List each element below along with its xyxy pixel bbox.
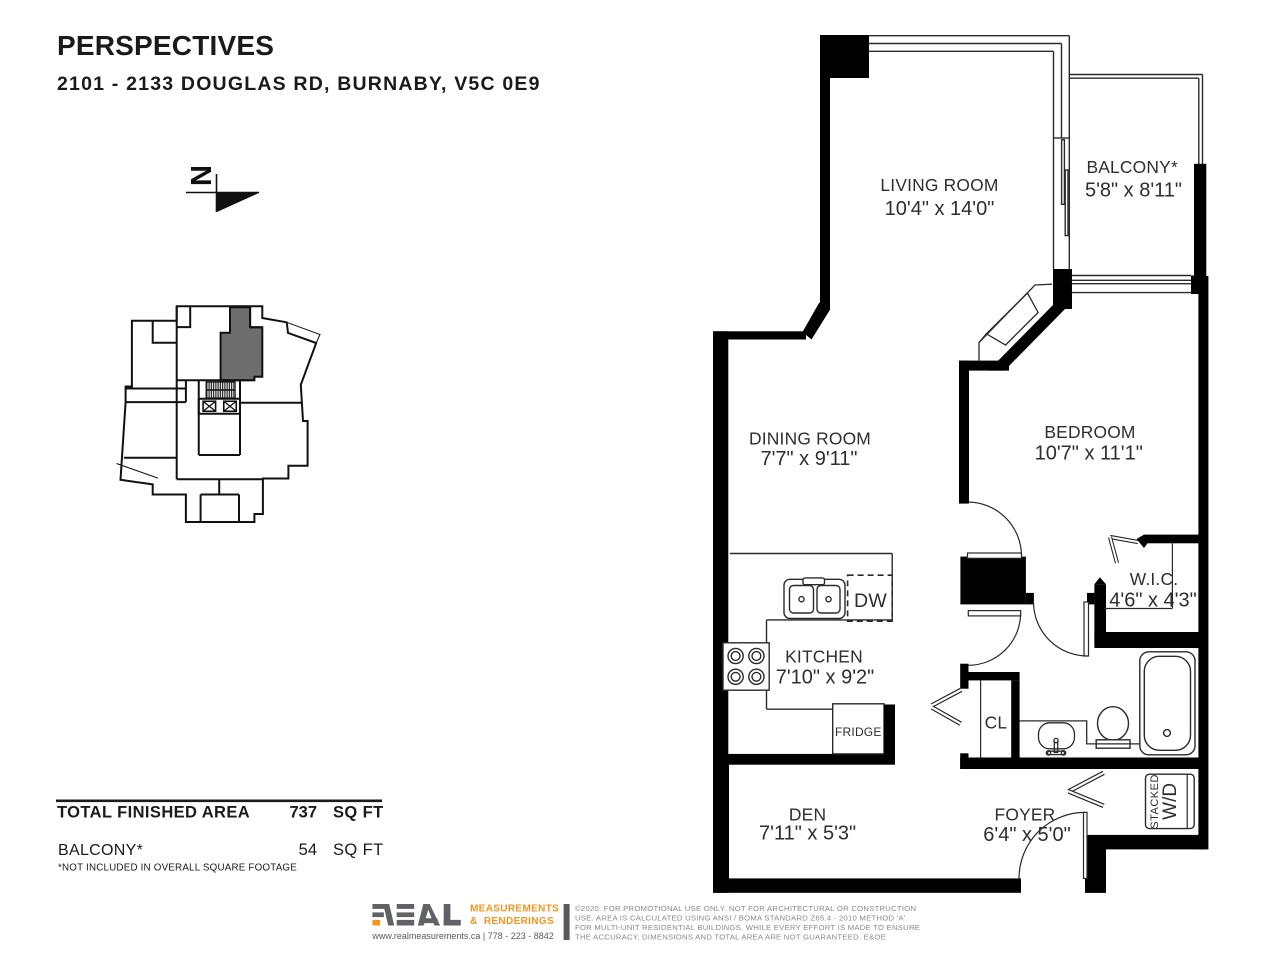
svg-text:6'4" x 5'0": 6'4" x 5'0" xyxy=(983,824,1070,846)
svg-text:737: 737 xyxy=(289,804,317,822)
svg-text:KITCHEN: KITCHEN xyxy=(785,647,863,667)
svg-text:CL: CL xyxy=(985,712,1008,732)
svg-text:MEASUREMENTS: MEASUREMENTS xyxy=(470,903,559,914)
svg-text:54: 54 xyxy=(299,841,317,859)
svg-text:10'4" x 14'0": 10'4" x 14'0" xyxy=(885,198,995,220)
svg-text:FOYER: FOYER xyxy=(995,805,1056,825)
svg-text:4'6" x 4'3": 4'6" x 4'3" xyxy=(1109,590,1196,612)
svg-text:2101 - 2133 DOUGLAS RD, BURNAB: 2101 - 2133 DOUGLAS RD, BURNABY, V5C 0E9 xyxy=(57,73,541,95)
svg-text:SQ FT: SQ FT xyxy=(333,804,384,822)
svg-text:THE ACCURACY, DIMENSIONS AND T: THE ACCURACY, DIMENSIONS AND TOTAL AREA … xyxy=(575,932,886,941)
svg-text:BEDROOM: BEDROOM xyxy=(1044,422,1135,442)
svg-text:BALCONY*: BALCONY* xyxy=(1086,157,1178,177)
svg-text:FOR MULTI-UNIT RESIDENTIAL BUI: FOR MULTI-UNIT RESIDENTIAL BUILDINGS. WH… xyxy=(575,923,920,932)
svg-text:DW: DW xyxy=(854,590,887,612)
svg-text:5'8" x 8'11": 5'8" x 8'11" xyxy=(1085,180,1182,202)
svg-text:PERSPECTIVES: PERSPECTIVES xyxy=(57,30,274,61)
svg-text:FRIDGE: FRIDGE xyxy=(835,725,882,739)
svg-text:*NOT INCLUDED IN OVERALL SQUAR: *NOT INCLUDED IN OVERALL SQUARE FOOTAGE xyxy=(58,863,297,874)
svg-text:10'7" x 11'1": 10'7" x 11'1" xyxy=(1035,443,1143,465)
svg-text:USE. AREA IS CALCULATED USING: USE. AREA IS CALCULATED USING ANSI / BOM… xyxy=(575,913,906,922)
svg-text:www.realmeasurements.ca | 778: www.realmeasurements.ca | 778 - 223 - 88… xyxy=(371,931,553,941)
svg-text:N: N xyxy=(186,165,218,186)
svg-text:W.I.C.: W.I.C. xyxy=(1130,569,1179,589)
svg-text:& RENDERINGS: & RENDERINGS xyxy=(470,916,554,927)
svg-text:LIVING ROOM: LIVING ROOM xyxy=(880,175,998,195)
svg-text:TOTAL FINISHED AREA: TOTAL FINISHED AREA xyxy=(57,804,250,822)
svg-text:©2020. FOR PROMOTIONAL USE ONL: ©2020. FOR PROMOTIONAL USE ONLY. NOT FOR… xyxy=(575,904,916,913)
svg-text:SQ FT: SQ FT xyxy=(333,841,384,859)
svg-text:W/D: W/D xyxy=(1160,783,1181,820)
svg-text:BALCONY*: BALCONY* xyxy=(58,842,143,859)
svg-text:DINING ROOM: DINING ROOM xyxy=(749,429,871,449)
svg-text:7'10" x 9'2": 7'10" x 9'2" xyxy=(776,667,875,689)
svg-text:7'11" x 5'3": 7'11" x 5'3" xyxy=(759,823,856,845)
svg-text:7'7" x 9'11": 7'7" x 9'11" xyxy=(760,448,857,470)
svg-text:DEN: DEN xyxy=(789,805,826,825)
